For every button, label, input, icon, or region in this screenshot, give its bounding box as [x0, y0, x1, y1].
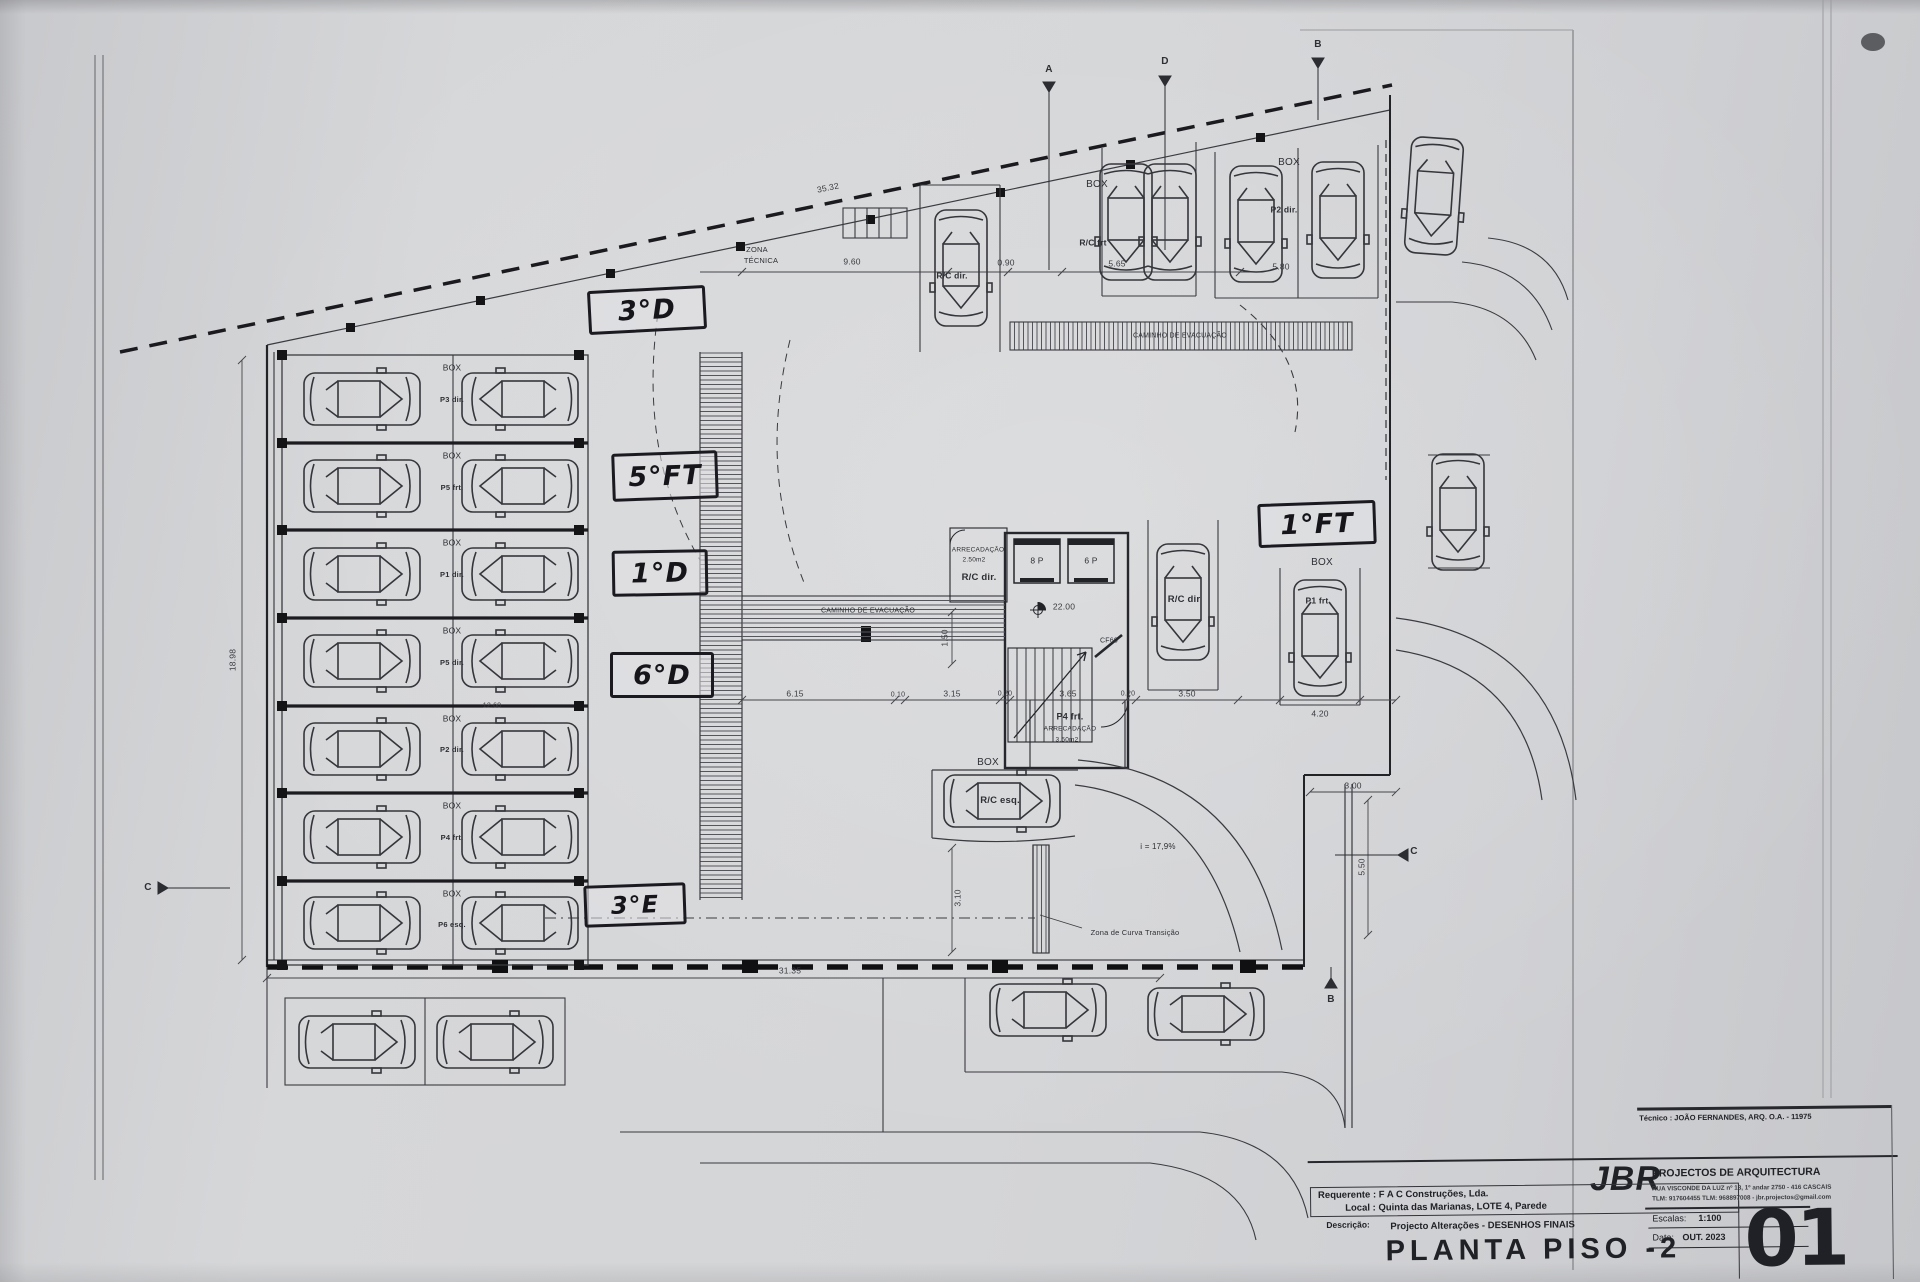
box-label: BOX [443, 715, 462, 724]
ramp-slope-label: i = 17,9% [1140, 843, 1175, 851]
box-label: BOX [977, 758, 999, 769]
dim-0-20b: 0.20 [1121, 690, 1135, 697]
title-block: Técnico : JOÃO FERNANDES, ARQ. O.A. - 11… [1299, 1097, 1916, 1282]
dim-3-50: 3.50 [1178, 690, 1195, 699]
box-label: BOX [1086, 180, 1108, 191]
arrecadacao-area-label: 2.50m2 [963, 558, 986, 565]
arrecadacao-label: ARRECADAÇÃO [952, 548, 1004, 555]
local-line: Local : Quinta das Marianas, LOTE 4, Par… [1345, 1201, 1547, 1214]
stall-label: P3 dir. [440, 396, 464, 404]
dim-3-00: 3.00 [1344, 782, 1361, 791]
requerente-line: Requerente : F A C Construções, Lda. [1318, 1188, 1488, 1201]
stall-label: P5 dir. [440, 659, 464, 667]
data-value: OUT. 2023 [1682, 1232, 1725, 1242]
site-boundary [120, 85, 1392, 352]
plan-title: PLANTA PISO -2 [1385, 1233, 1625, 1269]
handwritten-5ft: 5°FT [611, 450, 719, 502]
left-dimension [238, 356, 246, 964]
arrecadacao2-area-label: 3.50m2 [1056, 738, 1079, 745]
section-marker-d: D [1161, 57, 1168, 68]
section-markers [158, 58, 1408, 988]
floor-plan-drawing [0, 0, 1920, 1282]
stall-label: P2 dir. [440, 746, 464, 754]
firm-subtitle: PROJECTOS DE ARQUITECTURA [1652, 1166, 1821, 1180]
section-marker-a: A [1045, 65, 1052, 76]
section-marker-c-left: C [144, 883, 151, 894]
section-marker-b-bottom: B [1327, 995, 1334, 1006]
rc-dir-top-label: R/C dir. [936, 272, 967, 281]
scanned-floor-plan-photo: ZONA TÉCNICA CAMINHO DE EVACUAÇÃO CAMINH… [0, 0, 1920, 1282]
stall-label: P4 frt. [441, 834, 464, 842]
zona-tecnica-label-line2: TÉCNICA [744, 257, 778, 265]
p4-frt-label: P4 frt. [1057, 712, 1084, 721]
sheet-number: 01 [1744, 1193, 1847, 1282]
elevator-left-label: 8 P [1030, 557, 1043, 566]
stall-label: P6 esq. [438, 921, 466, 929]
box-label: BOX [443, 539, 462, 548]
dim-5-65: 5.65 [1108, 260, 1125, 269]
box-label: BOX [443, 802, 462, 811]
left-parking-block [277, 350, 588, 970]
tecnico-line: Técnico : JOÃO FERNANDES, ARQ. O.A. - 11… [1639, 1112, 1811, 1123]
rc-esq-label: R/C esq. [980, 796, 1020, 806]
stall-label: P5 frt. [441, 484, 464, 492]
cf60-label: CF60 [1100, 637, 1118, 644]
dim-18-98: 18.98 [229, 649, 238, 671]
dim-5-50: 5.50 [1358, 858, 1367, 875]
caminho-evacuacao-top-label: CAMINHO DE EVACUAÇÃO [1133, 332, 1227, 339]
corner-mark [1861, 33, 1885, 51]
dim-0-20: 0.20 [998, 690, 1012, 697]
p1-frt-label: P1 frt [1306, 597, 1329, 606]
escala-value: 1:100 [1698, 1213, 1721, 1223]
dim-5-80: 5.80 [1272, 263, 1289, 272]
handwritten-1ft: 1°FT [1257, 500, 1376, 548]
box-label: BOX [443, 364, 462, 373]
dim-3-10: 3.10 [954, 889, 963, 906]
box-label: BOX [1311, 558, 1333, 569]
box-label: BOX [443, 452, 462, 461]
caminho-evacuacao-left-label: CAMINHO DE EVACUAÇÃO [821, 607, 915, 614]
p2-dir-label: P2 dir. [1271, 206, 1298, 215]
stall-label: P1 dir. [440, 571, 464, 579]
dim-6-15: 6.15 [786, 690, 803, 699]
zona-tecnica-label-line1: ZONA [746, 246, 768, 254]
handwritten-3e: 3°E [583, 882, 686, 928]
rc-frt-label: R/C frt [1079, 239, 1106, 248]
level-22-00: 22.00 [1053, 603, 1075, 612]
data-label: Data: [1652, 1232, 1674, 1242]
handwritten-3d: 3°D [587, 285, 707, 335]
rc-dir-right-label: R/C dir [1168, 595, 1201, 605]
section-marker-c-right: C [1410, 847, 1417, 858]
dim-0-10: 0.10 [891, 691, 905, 698]
escala-label: Escalas: [1652, 1213, 1686, 1223]
descricao-line: Projecto Alterações - DESENHOS FINAIS [1390, 1219, 1575, 1232]
elevator-right-label: 6 P [1084, 557, 1097, 566]
dim-4-20: 4.20 [1311, 710, 1328, 719]
box-label: BOX [443, 627, 462, 636]
dim-0-90: 0.90 [997, 259, 1014, 268]
titleblock-right-edge [1891, 1105, 1894, 1279]
section-marker-b-top: B [1314, 40, 1321, 51]
dim-9-60: 9.60 [843, 258, 860, 267]
rc-dir-core-label: R/C dir. [962, 573, 997, 583]
arrecadacao2-label: ARRECADAÇÃO [1044, 727, 1096, 734]
zona-curva-label: Zona de Curva Transição [1091, 929, 1180, 937]
dim-3-65: 3.65 [1059, 690, 1076, 699]
top-right-stalls [1102, 142, 1568, 432]
descricao-label: Descrição: [1326, 1219, 1370, 1229]
sheet-divider [1738, 1201, 1740, 1279]
dim-3-15: 3.15 [943, 690, 960, 699]
dim-12-60: 12.60 [483, 702, 502, 709]
dim-1-50: 1.50 [941, 629, 950, 646]
box-label: BOX [443, 890, 462, 899]
dim-31-35: 31.35 [779, 967, 801, 976]
tecnico-rule [1637, 1105, 1891, 1111]
handwritten-1d: 1°D [612, 549, 709, 597]
box-label: BOX [1278, 158, 1300, 169]
handwritten-6d: 6°D [610, 652, 714, 698]
garage-walls [267, 95, 1390, 973]
